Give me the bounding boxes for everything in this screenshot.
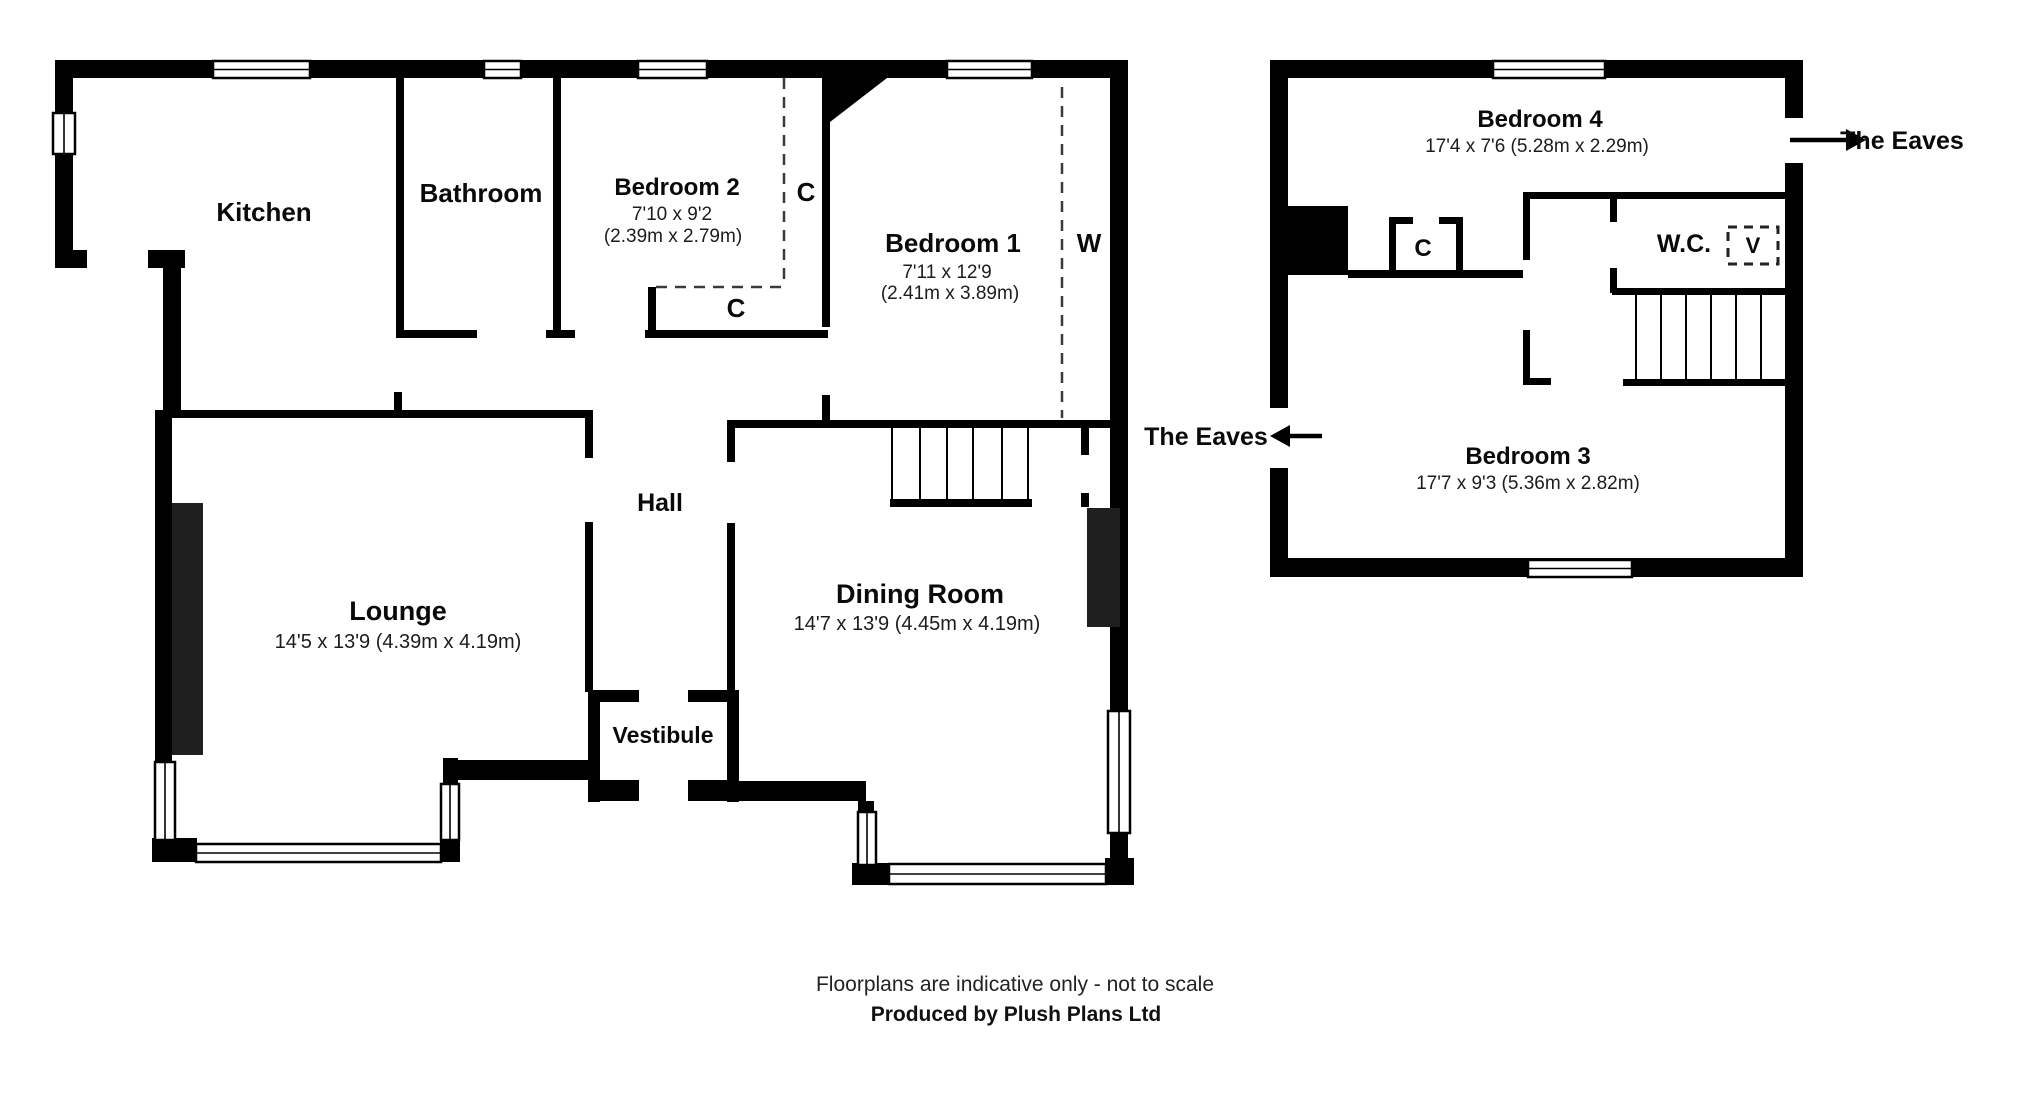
window: [638, 61, 707, 78]
room-dims-dining: 14'7 x 13'9 (4.45m x 4.19m): [794, 613, 1041, 635]
eaves-arrow-left: [1270, 425, 1322, 447]
room-dims-bedroom1-imperial: 7'11 x 12'9: [902, 262, 991, 283]
room-label-bedroom1: Bedroom 1: [885, 228, 1021, 258]
dining-chimney-breast: [1087, 508, 1120, 627]
room-dims-bedroom2-imperial: 7'10 x 9'2: [632, 204, 712, 225]
window: [484, 61, 521, 78]
window: [1493, 61, 1605, 78]
room-label-bedroom4: Bedroom 4: [1477, 106, 1603, 133]
window: [947, 61, 1032, 78]
window: [858, 812, 876, 865]
closet-label-1: C: [797, 177, 816, 207]
room-label-bedroom2: Bedroom 2: [614, 174, 739, 201]
closet-label-upper: C: [1414, 235, 1431, 262]
eaves-label-left: The Eaves: [1144, 423, 1268, 451]
window: [889, 864, 1106, 884]
room-label-wc: W.C.: [1657, 230, 1711, 258]
floorplan-page: Kitchen Bathroom Bedroom 2 7'10 x 9'2 (2…: [0, 0, 2025, 1109]
window: [441, 784, 459, 840]
closet-label-2: C: [727, 293, 746, 323]
window: [155, 762, 175, 840]
floorplan-drawing: Kitchen Bathroom Bedroom 2 7'10 x 9'2 (2…: [0, 0, 2025, 1109]
room-label-hall: Hall: [637, 489, 683, 517]
room-label-lounge: Lounge: [349, 596, 446, 626]
room-dims-bedroom3: 17'7 x 9'3 (5.36m x 2.82m): [1416, 473, 1640, 494]
velux-label: V: [1746, 233, 1761, 258]
lounge-chimney-breast: [172, 503, 203, 755]
ground-floor-stairs: [892, 428, 1028, 501]
window: [1108, 711, 1130, 833]
room-label-bathroom: Bathroom: [420, 178, 543, 208]
bedroom1-corner-chimney: [830, 78, 887, 122]
room-label-dining: Dining Room: [836, 579, 1004, 609]
first-floor-stairs: [1636, 295, 1761, 379]
eaves-label-right: The Eaves: [1840, 127, 1964, 155]
window: [213, 61, 310, 78]
room-label-vestibule: Vestibule: [613, 722, 714, 748]
room-dims-lounge: 14'5 x 13'9 (4.39m x 4.19m): [275, 631, 522, 653]
window: [1528, 560, 1632, 577]
footer-credit: Produced by Plush Plans Ltd: [871, 1003, 1162, 1026]
room-dims-bedroom1-metric: (2.41m x 3.89m): [881, 283, 1019, 304]
window: [53, 113, 75, 154]
footer-disclaimer: Floorplans are indicative only - not to …: [816, 973, 1214, 996]
room-dims-bedroom2-metric: (2.39m x 2.79m): [604, 226, 742, 247]
window: [196, 844, 441, 862]
room-label-bedroom3: Bedroom 3: [1465, 443, 1590, 470]
room-dims-bedroom4: 17'4 x 7'6 (5.28m x 2.29m): [1425, 136, 1649, 157]
room-label-kitchen: Kitchen: [216, 197, 311, 227]
wardrobe-label: W: [1077, 228, 1102, 258]
